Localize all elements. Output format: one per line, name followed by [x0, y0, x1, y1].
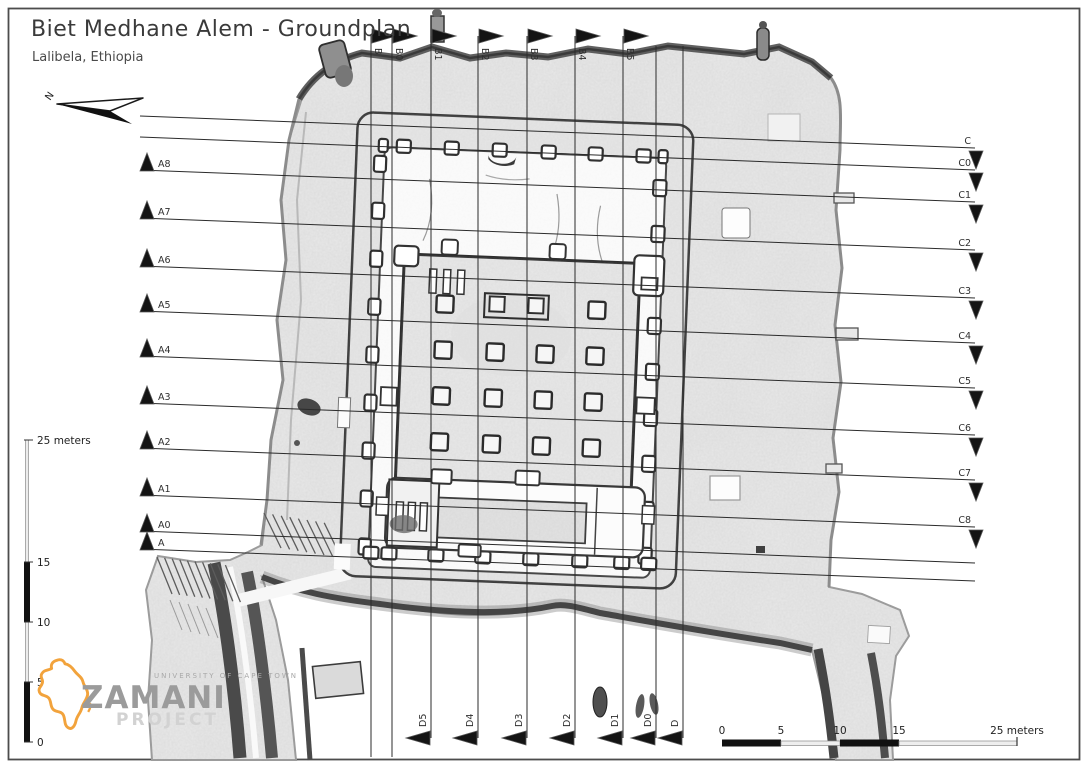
chancel-pillar-2 [528, 298, 544, 314]
section-marker-D4 [453, 731, 477, 745]
section-label-B0: B0 [393, 48, 404, 61]
church-pillar [434, 341, 452, 359]
church-slot-2 [443, 269, 451, 293]
section-marker-C4 [969, 346, 983, 364]
church-pillar [588, 301, 606, 319]
pillar-base [658, 150, 668, 163]
section-marker-B3 [528, 29, 552, 43]
pillar-remnant-head [432, 9, 442, 17]
groundplan-page: CC0A8C1A7C2A6C3A5C4A4C5A3C6A2C7A1C8A0A B… [0, 0, 1088, 768]
church-pillar [486, 343, 504, 361]
pillar-base [366, 346, 379, 362]
section-marker-D1 [598, 731, 622, 745]
outbuilding [312, 662, 363, 699]
section-marker-C2 [969, 253, 983, 271]
church-pillar [586, 347, 604, 365]
section-marker-B4 [576, 29, 600, 43]
church-e-stub-2 [636, 397, 655, 414]
pillar-base [492, 143, 507, 157]
section-label-A7: A7 [158, 207, 171, 218]
rock-stack-blob [335, 65, 353, 87]
section-marker-D2 [550, 731, 574, 745]
section-marker-B2 [479, 29, 503, 43]
hscale-tick-label-0: 0 [719, 725, 726, 737]
page-title: Biet Medhane Alem - Groundplan [31, 17, 411, 42]
vscale-tick-label-10: 10 [37, 617, 50, 629]
section-marker-C5 [969, 391, 983, 409]
wall-fragment [302, 648, 310, 760]
annex-bridge-w [376, 497, 389, 515]
vscale-dark-2 [24, 682, 30, 742]
pillar-base [653, 180, 667, 197]
church-pillar [484, 389, 502, 407]
section-marker-A [140, 532, 154, 550]
annex-porch-south [458, 544, 480, 557]
hscale-tick-label-10: 10 [833, 725, 846, 737]
cistern-opening [722, 208, 750, 238]
church-pillar [534, 391, 552, 409]
courtyard-group [332, 112, 694, 589]
pillar-base [651, 226, 665, 243]
section-marker-A2 [140, 431, 154, 449]
section-marker-A8 [140, 153, 154, 171]
pillar-base [444, 141, 459, 155]
edge-stub-3 [826, 464, 842, 473]
section-label-A2: A2 [158, 437, 171, 448]
section-marker-C7 [969, 483, 983, 501]
church-pillar [533, 437, 551, 455]
section-label-B1: B1 [432, 48, 443, 61]
rock-pinnacle-head [759, 21, 767, 29]
annex-slot-3 [419, 503, 427, 531]
pillar-base [646, 364, 660, 381]
zamani-logo: UNIVERSITY OF CAPE TOWN ZAMANI PROJECT [34, 652, 254, 744]
section-label-A1: A1 [158, 484, 171, 495]
pillar-base [379, 139, 389, 152]
section-marker-C6 [969, 438, 983, 456]
section-label-B2: B2 [479, 48, 490, 61]
section-label-B3: B3 [528, 48, 539, 61]
church-pillar [584, 393, 602, 411]
hscale-tick-label-15: 15 [892, 725, 905, 737]
church-pillar [436, 295, 454, 313]
stone-post-1 [593, 687, 607, 717]
section-label-A8: A8 [158, 159, 171, 170]
section-marker-A6 [140, 249, 154, 267]
section-label-A0: A0 [158, 520, 171, 531]
hscale-dark-1 [722, 740, 781, 747]
section-marker-C3 [969, 301, 983, 319]
church-slot-3 [457, 270, 465, 294]
small-mark [294, 440, 300, 446]
section-marker-C0 [969, 173, 983, 191]
section-marker-A0 [140, 514, 154, 532]
vscale-tick-label-15: 15 [37, 557, 50, 569]
section-marker-A4 [140, 339, 154, 357]
church-e-stub-1 [641, 277, 657, 290]
church-nw-tower [394, 246, 419, 267]
section-label-C6: C6 [958, 423, 971, 434]
north-arrow: N [43, 90, 143, 124]
north-arrow-upper [57, 98, 143, 111]
hscale-dark-2 [840, 740, 899, 747]
hscale-light-1 [781, 741, 840, 746]
church-pillar [536, 345, 554, 363]
section-label-C8: C8 [958, 515, 971, 526]
vscale-light-1 [26, 440, 29, 562]
section-marker-B5 [624, 29, 648, 43]
logo-university-text: UNIVERSITY OF CAPE TOWN [154, 672, 298, 680]
section-marker-A5 [140, 294, 154, 312]
section-label-B4: B4 [576, 48, 587, 61]
small-pit [756, 546, 765, 553]
section-label-A4: A4 [158, 345, 171, 356]
annex-platform-texture [435, 497, 586, 543]
hscale-tick-label-25-meters: 25 meters [990, 725, 1044, 737]
section-marker-D0 [631, 731, 655, 745]
pillar-base [370, 251, 383, 267]
section-label-B: B [372, 48, 383, 55]
wall-niche [337, 397, 350, 427]
porch-north-1 [441, 239, 458, 255]
cistern-opening-2 [710, 476, 740, 500]
pillar-base [647, 318, 661, 335]
pillar-base [588, 147, 603, 161]
section-label-A3: A3 [158, 392, 171, 403]
section-marker-C1 [969, 205, 983, 223]
pillar-base [374, 156, 387, 172]
pillar-base [372, 203, 385, 219]
section-label-A: A [158, 538, 165, 549]
section-label-C4: C4 [958, 331, 971, 342]
church-pillar [582, 439, 600, 457]
annex-porch-2 [515, 471, 540, 486]
pillar-base [541, 145, 556, 159]
section-marker-A1 [140, 478, 154, 496]
section-label-D0: D0 [643, 714, 654, 727]
chancel-pillar-1 [489, 296, 505, 312]
section-label-D4: D4 [465, 714, 476, 727]
church-w-stub [380, 387, 397, 406]
pillar-base [397, 140, 412, 154]
section-label-D: D [670, 720, 681, 727]
vscale-light-2 [26, 622, 29, 682]
church-pillar [483, 435, 501, 453]
stone-post-3 [648, 692, 660, 715]
section-label-D2: D2 [562, 714, 573, 727]
section-label-C0: C0 [958, 158, 971, 169]
section-label-C5: C5 [958, 376, 971, 387]
section-label-C3: C3 [958, 286, 971, 297]
annex-porch-1 [431, 469, 452, 484]
section-label-D5: D5 [418, 714, 429, 727]
rock-pinnacle [757, 28, 769, 60]
section-label-C2: C2 [958, 238, 971, 249]
section-marker-D5 [406, 731, 430, 745]
section-marker-C [969, 151, 983, 169]
section-marker-A7 [140, 201, 154, 219]
vscale-label: 25 meters [37, 435, 91, 447]
pillar-base [364, 394, 377, 410]
north-label: N [43, 90, 56, 102]
section-label-D1: D1 [610, 714, 621, 727]
section-marker-D [658, 731, 682, 745]
edge-stub-1 [834, 193, 854, 203]
hscale-tick-label-5: 5 [778, 725, 785, 737]
church-pillar [431, 433, 449, 451]
church-pillar [432, 387, 450, 405]
hscale-light-2 [899, 741, 1017, 746]
church-slot-1 [429, 269, 437, 293]
page-subtitle: Lalibela, Ethiopia [32, 50, 143, 65]
section-marker-D3 [502, 731, 526, 745]
porch-north-2 [549, 244, 566, 260]
section-label-A5: A5 [158, 300, 171, 311]
section-label-D3: D3 [514, 714, 525, 727]
section-label-C7: C7 [958, 468, 971, 479]
outbuilding-footprint [312, 662, 363, 699]
vscale-dark-1 [24, 562, 30, 622]
logo-project-text: PROJECT [116, 710, 219, 730]
rock-cut-square [768, 114, 800, 141]
pillar-base [636, 149, 651, 163]
section-marker-A3 [140, 386, 154, 404]
rock-cut-patch [868, 625, 891, 643]
section-marker-C8 [969, 530, 983, 548]
pillar-base [368, 298, 381, 314]
pillar-base [642, 456, 656, 473]
section-label-C1: C1 [958, 190, 971, 201]
section-label-B5: B5 [624, 48, 635, 61]
section-label-C: C [964, 136, 971, 147]
section-label-A6: A6 [158, 255, 171, 266]
